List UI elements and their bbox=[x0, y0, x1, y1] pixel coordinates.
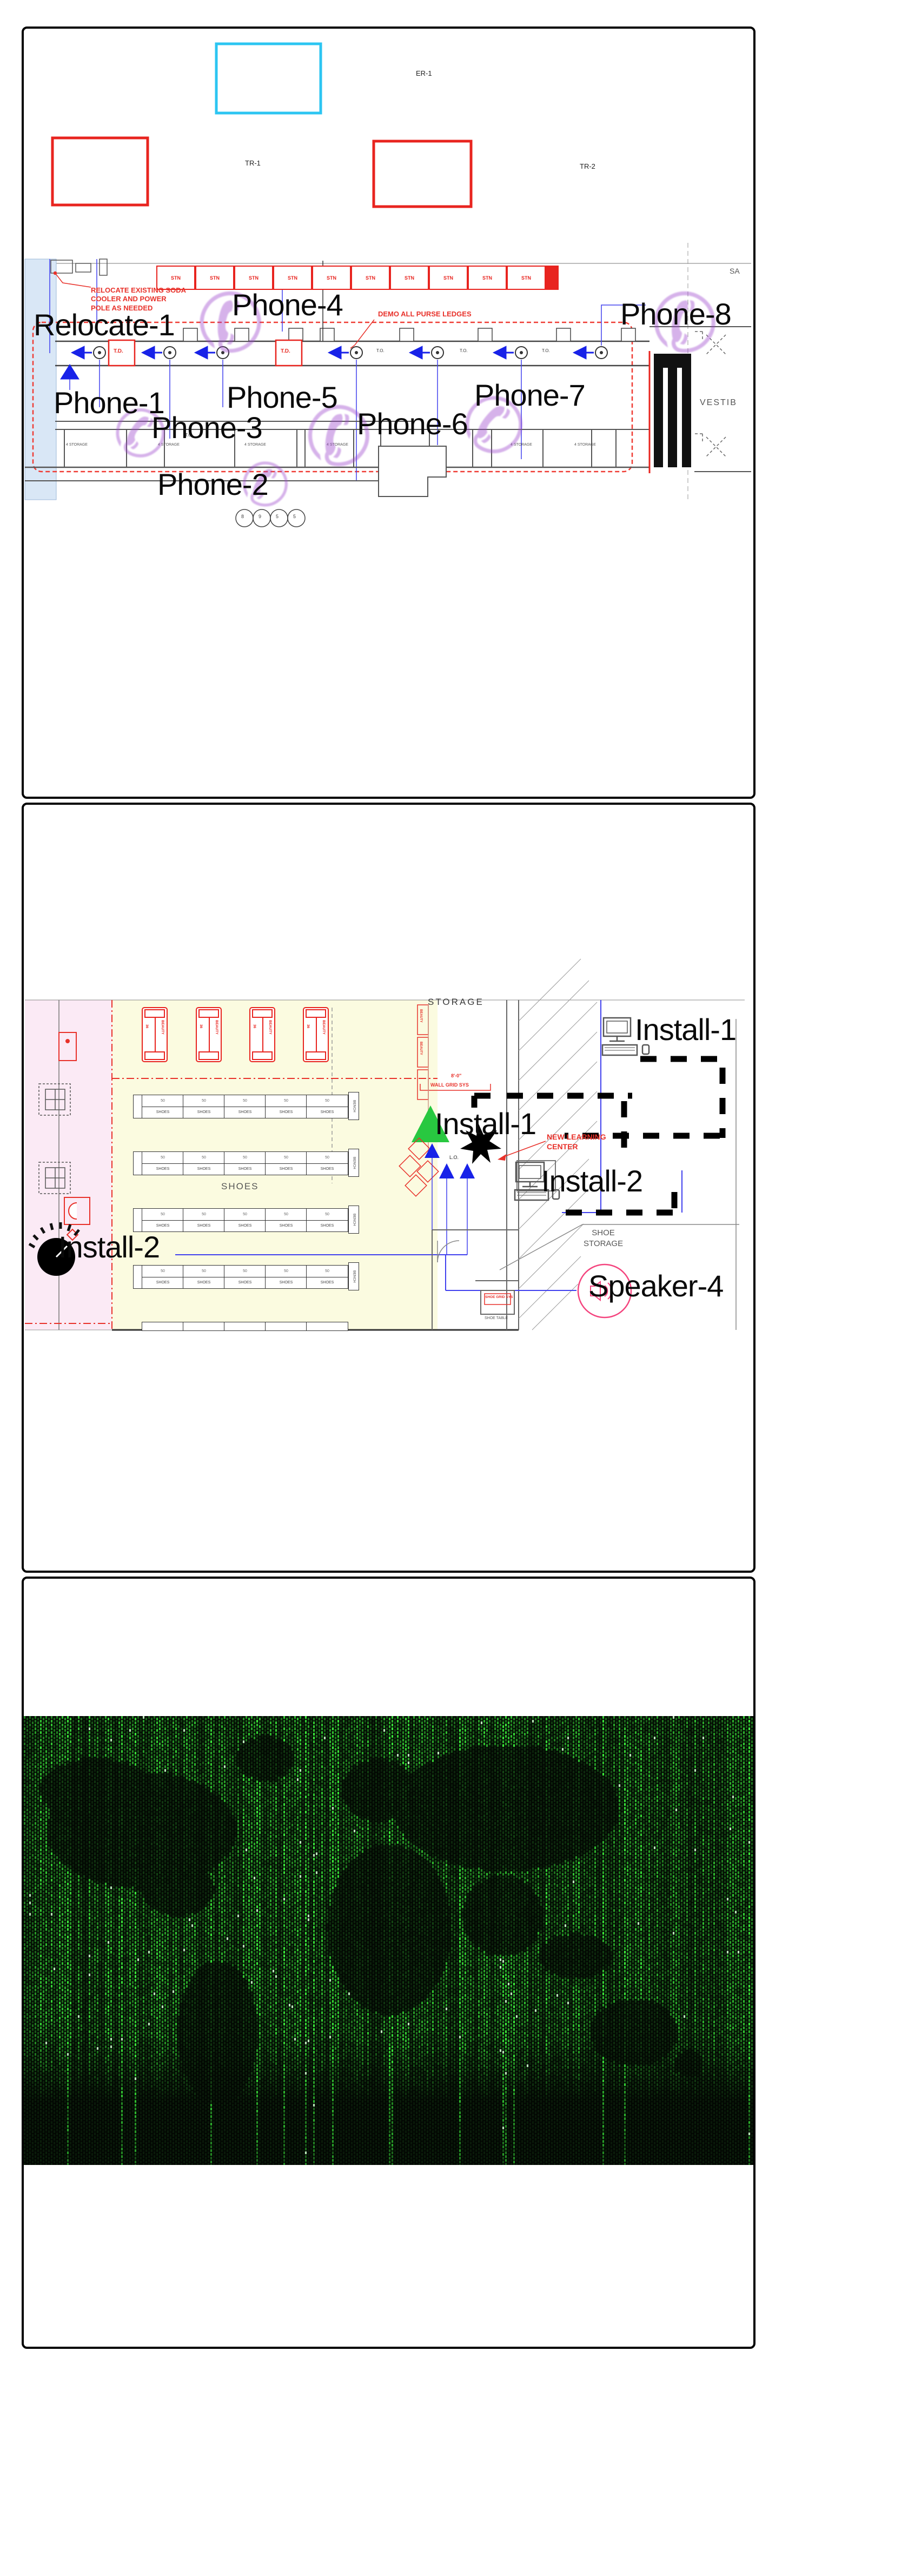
wall-beauty-label: BEAUTY bbox=[419, 1009, 422, 1023]
shelf-name-label: SHOES bbox=[224, 1164, 266, 1175]
shelf-bay: 50SHOES bbox=[142, 1095, 184, 1118]
beauty-label: BEAUTY bbox=[268, 1020, 272, 1035]
gondola-size-label: 36 bbox=[145, 1024, 149, 1028]
shelf-size-label: 50 bbox=[307, 1209, 348, 1221]
shelf-size-label: 50 bbox=[307, 1152, 348, 1164]
shelf-name-label: SHOES bbox=[224, 1277, 266, 1289]
er1-box bbox=[216, 44, 321, 113]
shelf-bay: 50SHOES bbox=[306, 1208, 348, 1232]
shelf-name-label: SHOES bbox=[142, 1277, 183, 1289]
shelf-size-label: 50 bbox=[183, 1266, 224, 1277]
bench-endcap: BENCH bbox=[348, 1262, 359, 1290]
shelf-bay: 50SHOES bbox=[265, 1208, 307, 1232]
er1-label: ER-1 bbox=[416, 70, 432, 77]
shelf-bay: 50SHOES bbox=[224, 1151, 266, 1175]
marker-label-install-1-top: Install-1 bbox=[635, 1015, 736, 1045]
shelf-name-label: SHOES bbox=[307, 1277, 348, 1289]
shoes-big-label: SHOES bbox=[221, 1182, 259, 1191]
beauty-label: BEAUTY bbox=[161, 1020, 164, 1035]
shelf-size-label: 50 bbox=[224, 1095, 266, 1107]
td-label: T.D. bbox=[281, 349, 290, 354]
shelf-name-label: SHOES bbox=[307, 1164, 348, 1175]
beauty-gondola: 36BEAUTY bbox=[249, 1007, 275, 1062]
shelf-size-label: 50 bbox=[307, 1266, 348, 1277]
demo-note: DEMO ALL PURSE LEDGES bbox=[378, 310, 472, 319]
shelf-name-label: SHOES bbox=[183, 1277, 224, 1289]
stn-cell: STN bbox=[390, 266, 429, 290]
page-3-image bbox=[22, 1577, 755, 2349]
page-2-floor-plan: 36BEAUTY36BEAUTY36BEAUTY36BEAUTY50SHOES5… bbox=[22, 803, 755, 1573]
marker-label-relocate-1: Relocate-1 bbox=[34, 310, 175, 340]
stn-cell: STN bbox=[351, 266, 390, 290]
matrix-world-map-image bbox=[24, 1716, 753, 2165]
tr2-box bbox=[374, 141, 471, 207]
shelf-name-label: SHOES bbox=[266, 1277, 307, 1289]
stn-cell: STN bbox=[273, 266, 312, 290]
shelf-bay-clipped bbox=[306, 1322, 348, 1331]
marker-label-install-2-right: Install-2 bbox=[541, 1166, 642, 1196]
marker-label-phone-8: Phone-8 bbox=[620, 299, 731, 329]
wall-beauty-label: BEAUTY bbox=[419, 1042, 422, 1055]
roof-units bbox=[51, 259, 107, 275]
shelf-bay: 50SHOES bbox=[142, 1265, 184, 1289]
nlc-leader bbox=[498, 1141, 546, 1161]
shelf-name-label: SHOES bbox=[142, 1164, 183, 1175]
shelf-bay-clipped bbox=[183, 1322, 225, 1331]
shelf-name-label: SHOES bbox=[183, 1164, 224, 1175]
shelf-bay: 50SHOES bbox=[306, 1265, 348, 1289]
marker-label-phone-1: Phone-1 bbox=[54, 388, 164, 418]
new-learning-center-label: NEW LEARNING CENTER bbox=[547, 1133, 606, 1151]
pink-zone bbox=[25, 1000, 112, 1330]
shelf-size-label: 50 bbox=[142, 1266, 183, 1277]
page-1-floor-plan: ER-1TR-1TR-2STNSTNSTNSTNSTNSTNSTNSTNSTNS… bbox=[22, 27, 755, 799]
shelf-name-label: SHOES bbox=[142, 1107, 183, 1118]
page-2-plan-drawing bbox=[24, 805, 753, 1571]
wall-grid-label: WALL GRID SYS bbox=[430, 1083, 469, 1088]
phone-fixture-icons bbox=[94, 347, 607, 359]
shelf-bay: 50SHOES bbox=[224, 1265, 266, 1289]
tr2-label: TR-2 bbox=[580, 163, 595, 170]
shelf-bay: 50SHOES bbox=[142, 1151, 184, 1175]
shelf-bay: 50SHOES bbox=[183, 1265, 225, 1289]
storage-room-label: 4 STORAGE bbox=[66, 443, 88, 447]
wall-grid-dim-label: 8'-0" bbox=[451, 1074, 461, 1078]
shelf-bay: 50SHOES bbox=[265, 1151, 307, 1175]
stn-endcap bbox=[546, 266, 559, 290]
to-label: T.O. bbox=[376, 349, 385, 353]
shelf-bay: 50SHOES bbox=[183, 1151, 225, 1175]
shelf-size-label: 50 bbox=[183, 1095, 224, 1107]
marker-label-phone-7: Phone-7 bbox=[474, 380, 585, 410]
sales-label-clipped: SA bbox=[730, 267, 740, 275]
storage-room-label: 4 STORAGE bbox=[574, 443, 596, 447]
shelf-bay: 50SHOES bbox=[183, 1208, 225, 1232]
shelf-name-label: SHOES bbox=[183, 1221, 224, 1232]
shoe-storage-label: SHOE STORAGE bbox=[584, 1228, 623, 1250]
shelf-name-label: SHOES bbox=[307, 1221, 348, 1232]
shelf-name-label: SHOES bbox=[224, 1107, 266, 1118]
shelf-size-label: 50 bbox=[266, 1152, 307, 1164]
shelf-name-label: SHOES bbox=[224, 1221, 266, 1232]
stn-cell: STN bbox=[468, 266, 507, 290]
shelf-size-label: 50 bbox=[142, 1152, 183, 1164]
marker-label-phone-4: Phone-4 bbox=[232, 290, 343, 320]
shelf-size-label: 50 bbox=[142, 1209, 183, 1221]
shelf-bay: 50SHOES bbox=[183, 1095, 225, 1118]
beauty-label: BEAUTY bbox=[215, 1020, 218, 1035]
bench-endcap: BENCH bbox=[348, 1206, 359, 1234]
vestibule-label: VESTIB bbox=[700, 399, 737, 407]
beauty-gondola: 36BEAUTY bbox=[303, 1007, 329, 1062]
shoe-grid-label: SHOE GRID SYS bbox=[485, 1296, 513, 1300]
l-shaped-room bbox=[379, 446, 446, 496]
beauty-gondola: 36BEAUTY bbox=[196, 1007, 222, 1062]
td-label: T.D. bbox=[114, 349, 123, 354]
shelf-size-label: 50 bbox=[307, 1095, 348, 1107]
shelf-bay-clipped bbox=[224, 1322, 266, 1331]
marker-label-phone-3: Phone-3 bbox=[151, 413, 262, 443]
stn-cell: STN bbox=[312, 266, 351, 290]
shelf-size-label: 50 bbox=[142, 1095, 183, 1107]
shelf-size-label: 50 bbox=[266, 1209, 307, 1221]
shelf-name-label: SHOES bbox=[307, 1107, 348, 1118]
marker-label-speaker-4: Speaker-4 bbox=[588, 1271, 723, 1301]
shelf-size-label: 50 bbox=[224, 1152, 266, 1164]
shelf-size-label: 50 bbox=[224, 1209, 266, 1221]
marker-label-phone-2: Phone-2 bbox=[157, 469, 268, 500]
beauty-gondola: 36BEAUTY bbox=[142, 1007, 168, 1062]
document-canvas: ER-1TR-1TR-2STNSTNSTNSTNSTNSTNSTNSTNSTNS… bbox=[0, 0, 908, 2576]
shelf-size-label: 50 bbox=[266, 1266, 307, 1277]
shelf-bay: 50SHOES bbox=[265, 1265, 307, 1289]
gondola-size-label: 36 bbox=[199, 1024, 203, 1028]
to-label: T.O. bbox=[460, 349, 468, 353]
shelf-bay: 50SHOES bbox=[224, 1095, 266, 1118]
shelf-bay: 50SHOES bbox=[306, 1151, 348, 1175]
grid-bubble-label: 5 bbox=[293, 514, 296, 519]
shoe-table-label: SHOE TABLE bbox=[485, 1316, 508, 1320]
marker-label-phone-5: Phone-5 bbox=[227, 382, 337, 413]
shelf-name-label: SHOES bbox=[266, 1164, 307, 1175]
shelf-size-label: 50 bbox=[224, 1266, 266, 1277]
shelf-bay: 50SHOES bbox=[265, 1095, 307, 1118]
shelf-bay: 50SHOES bbox=[142, 1208, 184, 1232]
gondola-size-label: 36 bbox=[306, 1024, 310, 1028]
blue-up-arrow bbox=[61, 365, 79, 379]
shelf-bay: 50SHOES bbox=[306, 1095, 348, 1118]
beauty-label: BEAUTY bbox=[322, 1020, 326, 1035]
stn-cell: STN bbox=[507, 266, 546, 290]
to-label: T.O. bbox=[542, 349, 550, 353]
marker-label-install-1: Install-1 bbox=[435, 1109, 536, 1139]
stn-cell: STN bbox=[429, 266, 468, 290]
bench-endcap: BENCH bbox=[348, 1149, 359, 1177]
shelf-name-label: SHOES bbox=[266, 1221, 307, 1232]
sidewalk-strip bbox=[25, 259, 56, 500]
tr1-label: TR-1 bbox=[245, 160, 261, 167]
marker-label-install-2-left: Install-2 bbox=[58, 1232, 160, 1262]
lo-label: L.O. bbox=[449, 1155, 459, 1160]
shelf-bay-clipped bbox=[265, 1322, 307, 1331]
shelf-bay: 50SHOES bbox=[224, 1208, 266, 1232]
shelf-bay-clipped bbox=[142, 1322, 184, 1331]
shelf-name-label: SHOES bbox=[183, 1107, 224, 1118]
bench-endcap: BENCH bbox=[348, 1092, 359, 1120]
marker-label-phone-6: Phone-6 bbox=[357, 409, 468, 439]
storage-top-label: STORAGE bbox=[428, 997, 484, 1006]
gondola-size-label: 36 bbox=[253, 1024, 256, 1028]
tr1-box bbox=[52, 138, 148, 205]
shelf-size-label: 50 bbox=[183, 1209, 224, 1221]
blue-arrows bbox=[61, 346, 594, 379]
shelf-name-label: SHOES bbox=[266, 1107, 307, 1118]
shelf-size-label: 50 bbox=[183, 1152, 224, 1164]
shelf-size-label: 50 bbox=[266, 1095, 307, 1107]
